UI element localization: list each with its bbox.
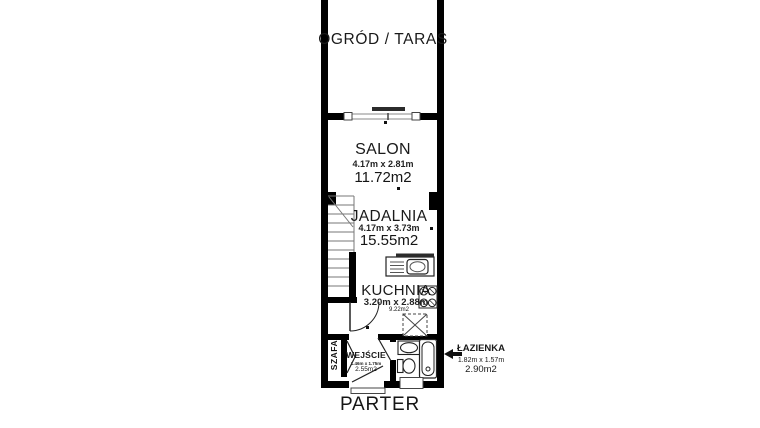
wejscie-name: WEJŚCIE: [346, 351, 386, 360]
jadalnia-area: 15.55m2: [360, 233, 418, 248]
lazienka-name: ŁAZIENKA: [457, 344, 505, 354]
wejscie-area: 2.55m2: [355, 367, 377, 374]
salon-dimensions: 4.17m x 2.81m: [352, 160, 413, 169]
kuchnia-area: 9.22m2: [389, 307, 409, 313]
kitchen-counter: [386, 254, 434, 277]
salon-name: SALON: [355, 142, 411, 158]
washbasin: [398, 341, 420, 355]
appliance-fridge: [403, 314, 427, 336]
entry-threshold: [351, 388, 385, 394]
floor-title: PARTER: [340, 395, 420, 414]
lazienka-dimensions: 1.82m x 1.57m: [458, 357, 504, 364]
salon-area: 11.72m2: [354, 170, 411, 185]
terrace-window: [344, 107, 420, 120]
bathroom-window: [400, 378, 423, 389]
szafa-label: SZAFA: [329, 340, 339, 370]
bathtub: [420, 340, 437, 379]
kuchnia-name: KUCHNIA: [361, 283, 431, 298]
lazienka-area: 2.90m2: [465, 365, 497, 375]
garden-terrace-label: OGRÓD / TARAS: [318, 32, 448, 48]
floor-plan-canvas: OGRÓD / TARAS SALON 4.17m x 2.81m 11.72m…: [0, 0, 760, 428]
toilet: [398, 359, 416, 373]
sliding-door-panel: [372, 107, 405, 111]
